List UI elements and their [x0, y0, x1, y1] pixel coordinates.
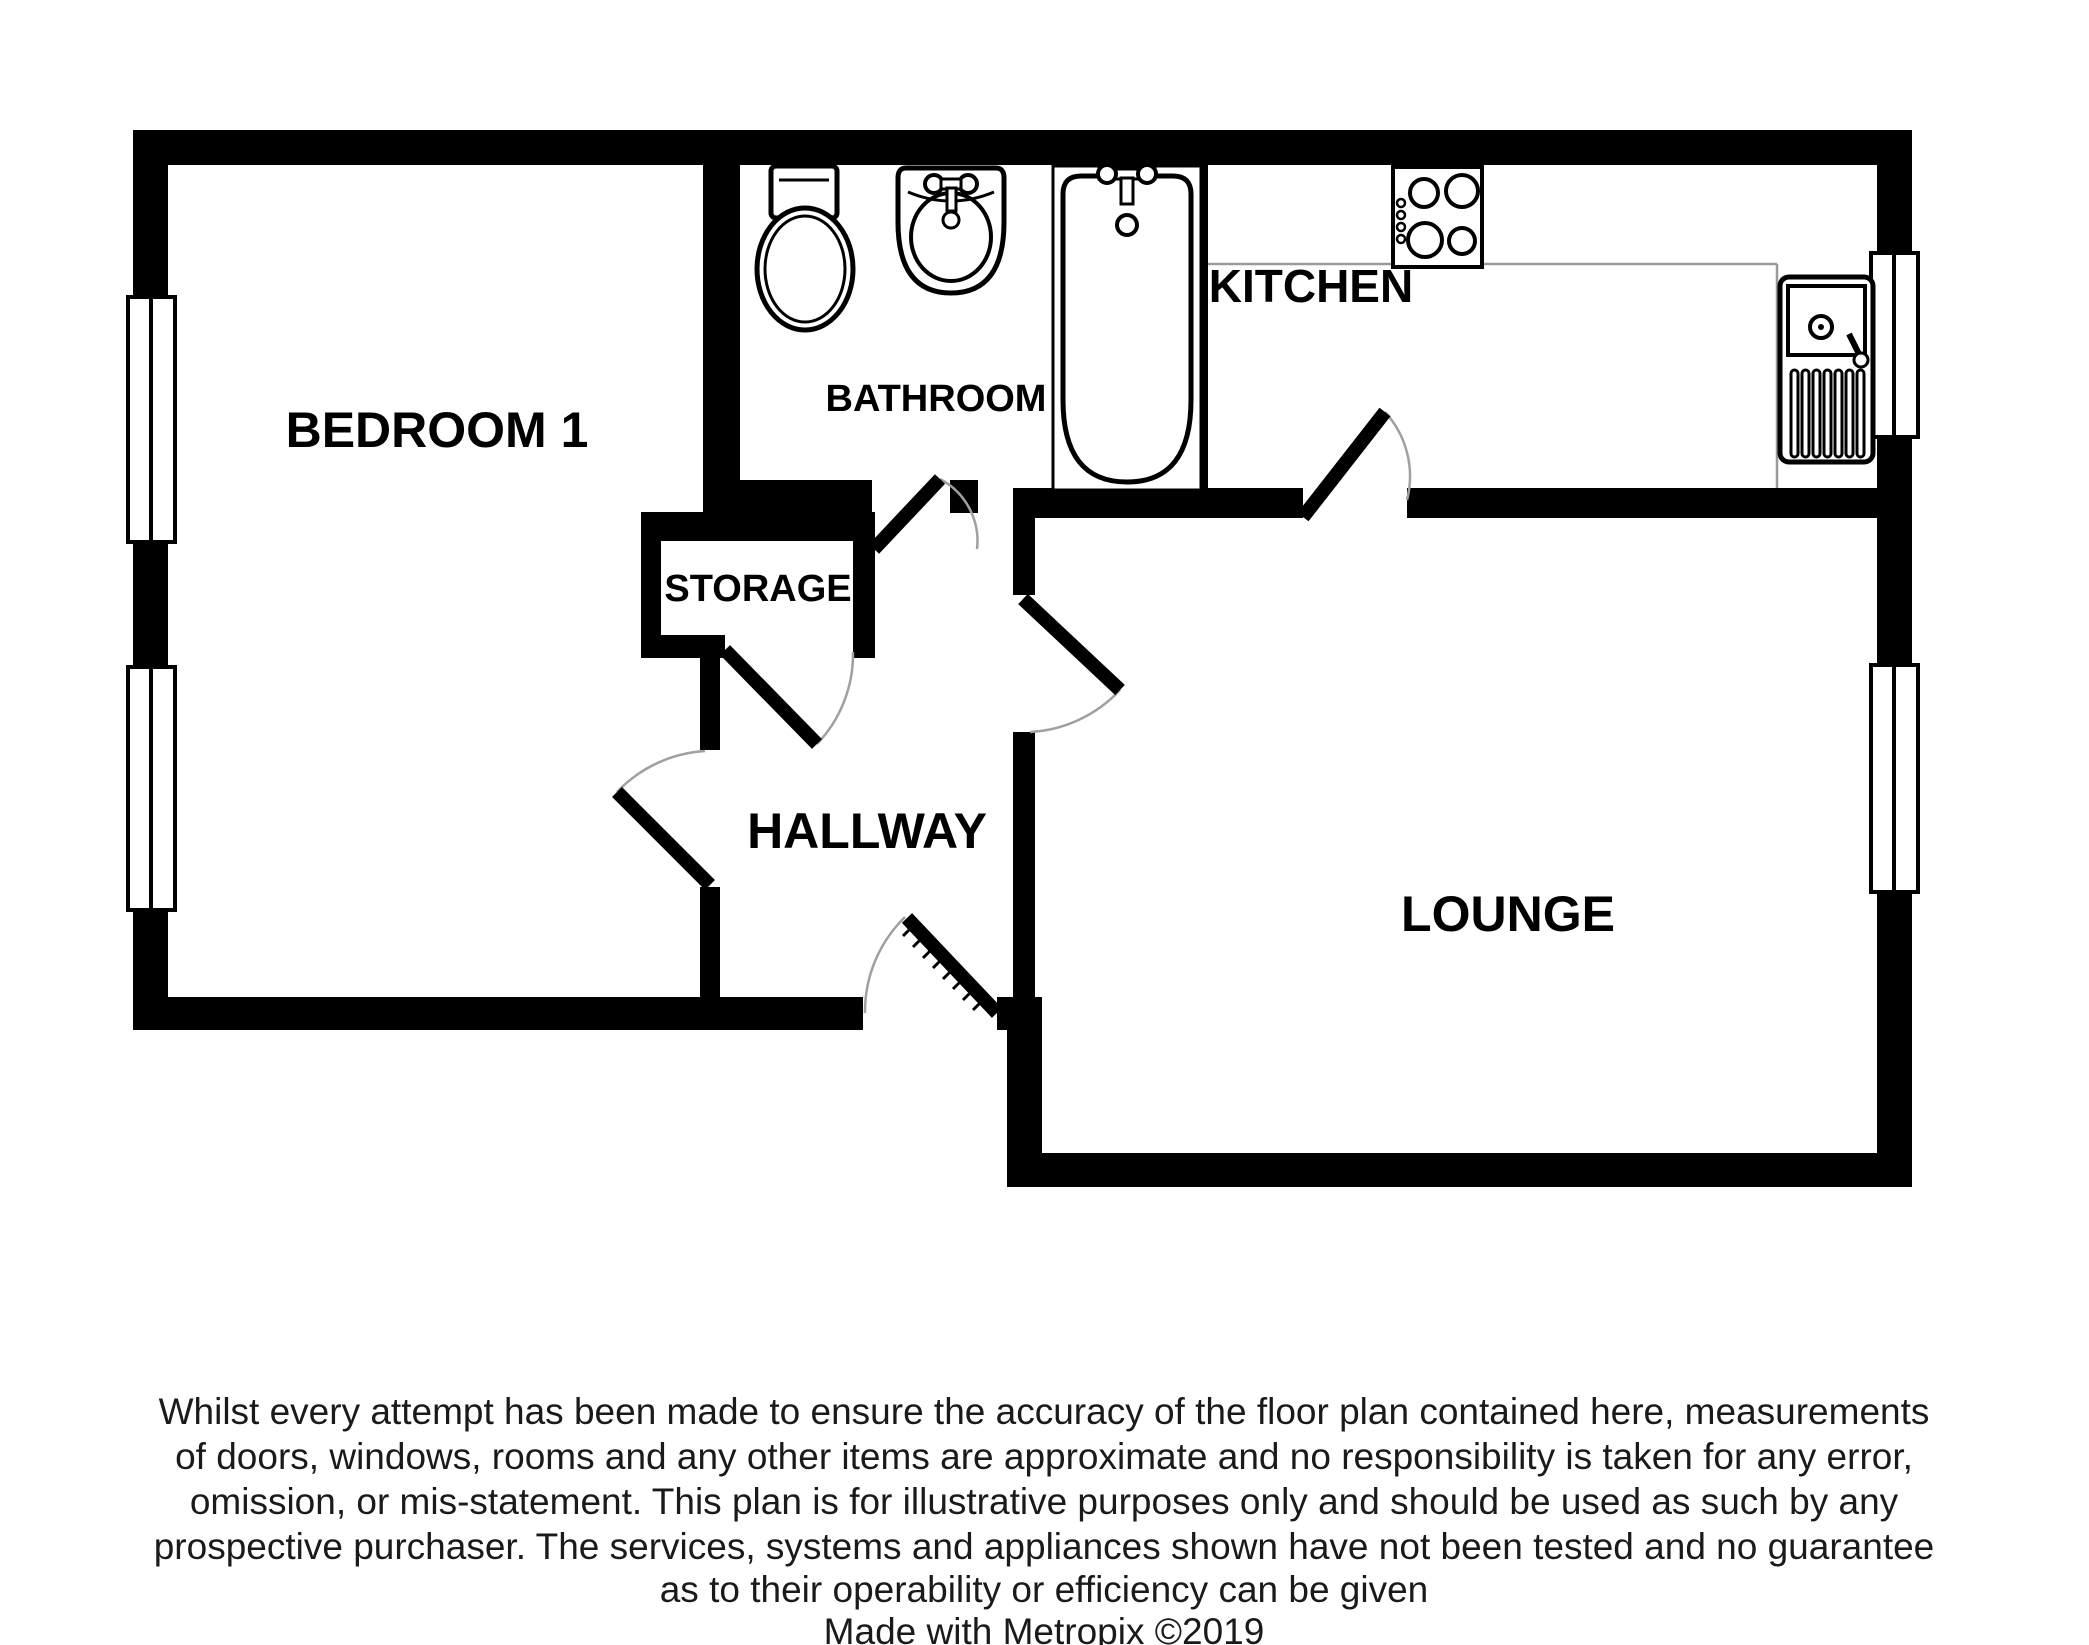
drainer-grooves — [1791, 370, 1864, 457]
wall-bathroom-bottom-right — [950, 480, 978, 513]
room-labels: BEDROOM 1 BATHROOM KITCHEN STORAGE HALLW… — [286, 260, 1615, 942]
label-bathroom: BATHROOM — [826, 378, 1047, 420]
hob-icon — [1393, 167, 1482, 267]
walls — [133, 130, 1912, 1187]
label-hallway: HALLWAY — [747, 803, 987, 859]
wall-bedroom-right-low — [700, 887, 720, 997]
disclaimer: Whilst every attempt has been made to en… — [154, 1391, 1935, 1645]
label-kitchen: KITCHEN — [1209, 260, 1413, 312]
door-entrance-icon — [865, 917, 997, 1013]
toilet-icon — [757, 166, 853, 330]
floor-plan-page: BEDROOM 1 BATHROOM KITCHEN STORAGE HALLW… — [0, 0, 2089, 1645]
wall-kitchen-bottom-left — [1017, 488, 1303, 518]
door-bedroom-icon — [617, 751, 710, 885]
disclaimer-line-2: of doors, windows, rooms and any other i… — [175, 1436, 1913, 1477]
door-kitchen-icon — [1303, 412, 1410, 517]
floor-plan: BEDROOM 1 BATHROOM KITCHEN STORAGE HALLW… — [0, 0, 2089, 1645]
wall-storage-top — [641, 512, 875, 541]
window-bedroom-2-icon — [128, 667, 175, 910]
entrance-door-hatching — [903, 925, 984, 1010]
wall-bedroom-right-upper — [703, 163, 740, 512]
wall-right-1 — [1877, 130, 1912, 253]
disclaimer-line-3: omission, or mis-statement. This plan is… — [190, 1481, 1899, 1522]
wall-storage-right — [853, 541, 875, 658]
wall-bathroom-bottom-left — [703, 480, 872, 513]
window-bedroom-1-icon — [128, 297, 175, 542]
label-storage: STORAGE — [664, 568, 851, 610]
bathtub-icon — [1053, 165, 1201, 490]
wall-left-1 — [133, 130, 168, 297]
disclaimer-line-4: prospective purchaser. The services, sys… — [154, 1526, 1935, 1567]
sink-icon — [1780, 277, 1873, 462]
label-lounge: LOUNGE — [1401, 886, 1615, 942]
wall-left-2 — [133, 542, 168, 667]
wall-bedroom-right-mid — [700, 658, 720, 750]
wall-right-2 — [1877, 437, 1912, 665]
window-kitchen-icon — [1871, 253, 1918, 437]
disclaimer-line-1: Whilst every attempt has been made to en… — [159, 1391, 1930, 1432]
label-bedroom: BEDROOM 1 — [286, 402, 589, 458]
wall-storage-bottom — [641, 635, 725, 658]
wall-lounge-corner — [997, 997, 1042, 1030]
wall-top — [133, 130, 1912, 165]
window-lounge-icon — [1871, 665, 1918, 892]
disclaimer-line-5: as to their operability or efficiency ca… — [660, 1569, 1429, 1610]
fixtures — [757, 165, 1873, 490]
basin-icon — [898, 168, 1004, 293]
wall-lounge-left-top — [1013, 488, 1035, 595]
metropix-credit: Made with Metropix ©2019 — [824, 1611, 1265, 1645]
wall-right-3 — [1877, 892, 1912, 1187]
wall-lounge-left-low — [1007, 1030, 1042, 1153]
door-storage-icon — [725, 650, 853, 744]
door-lounge-icon — [1023, 599, 1120, 732]
wall-bedroom-bottom — [133, 997, 863, 1030]
wall-lounge-left-mid — [1013, 732, 1035, 997]
wall-kitchen-bottom-right — [1407, 488, 1878, 518]
wall-lounge-bottom — [1007, 1153, 1912, 1187]
